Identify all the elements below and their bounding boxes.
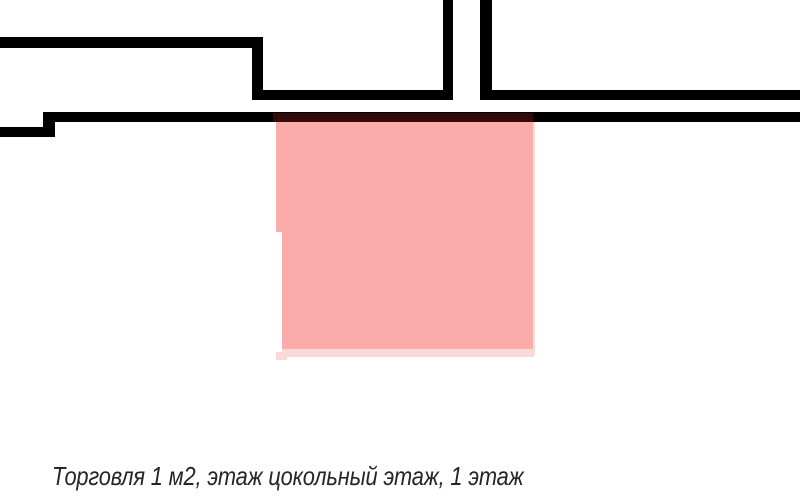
wall-corridor-vertical-right — [480, 0, 492, 100]
highlighted-unit-fill-lower — [282, 232, 533, 349]
highlighted-unit-wall-overlap — [273, 113, 533, 122]
wall-bottom-left-horizontal — [0, 127, 55, 137]
floor-plan-canvas: Торговля 1 м2, этаж цокольный этаж, 1 эт… — [0, 0, 800, 497]
highlighted-unit-border-bottom — [282, 349, 534, 357]
highlighted-unit-fill-upper — [276, 122, 533, 232]
highlighted-unit-border-corner — [276, 352, 287, 360]
wall-upper-horizontal-right-span — [480, 90, 800, 100]
wall-top-left-horizontal — [0, 37, 263, 48]
wall-upper-horizontal-left-span — [252, 90, 453, 100]
highlighted-unit-border-right — [533, 122, 535, 355]
unit-caption: Торговля 1 м2, этаж цокольный этаж, 1 эт… — [52, 462, 523, 491]
wall-corridor-vertical-left — [443, 0, 453, 100]
